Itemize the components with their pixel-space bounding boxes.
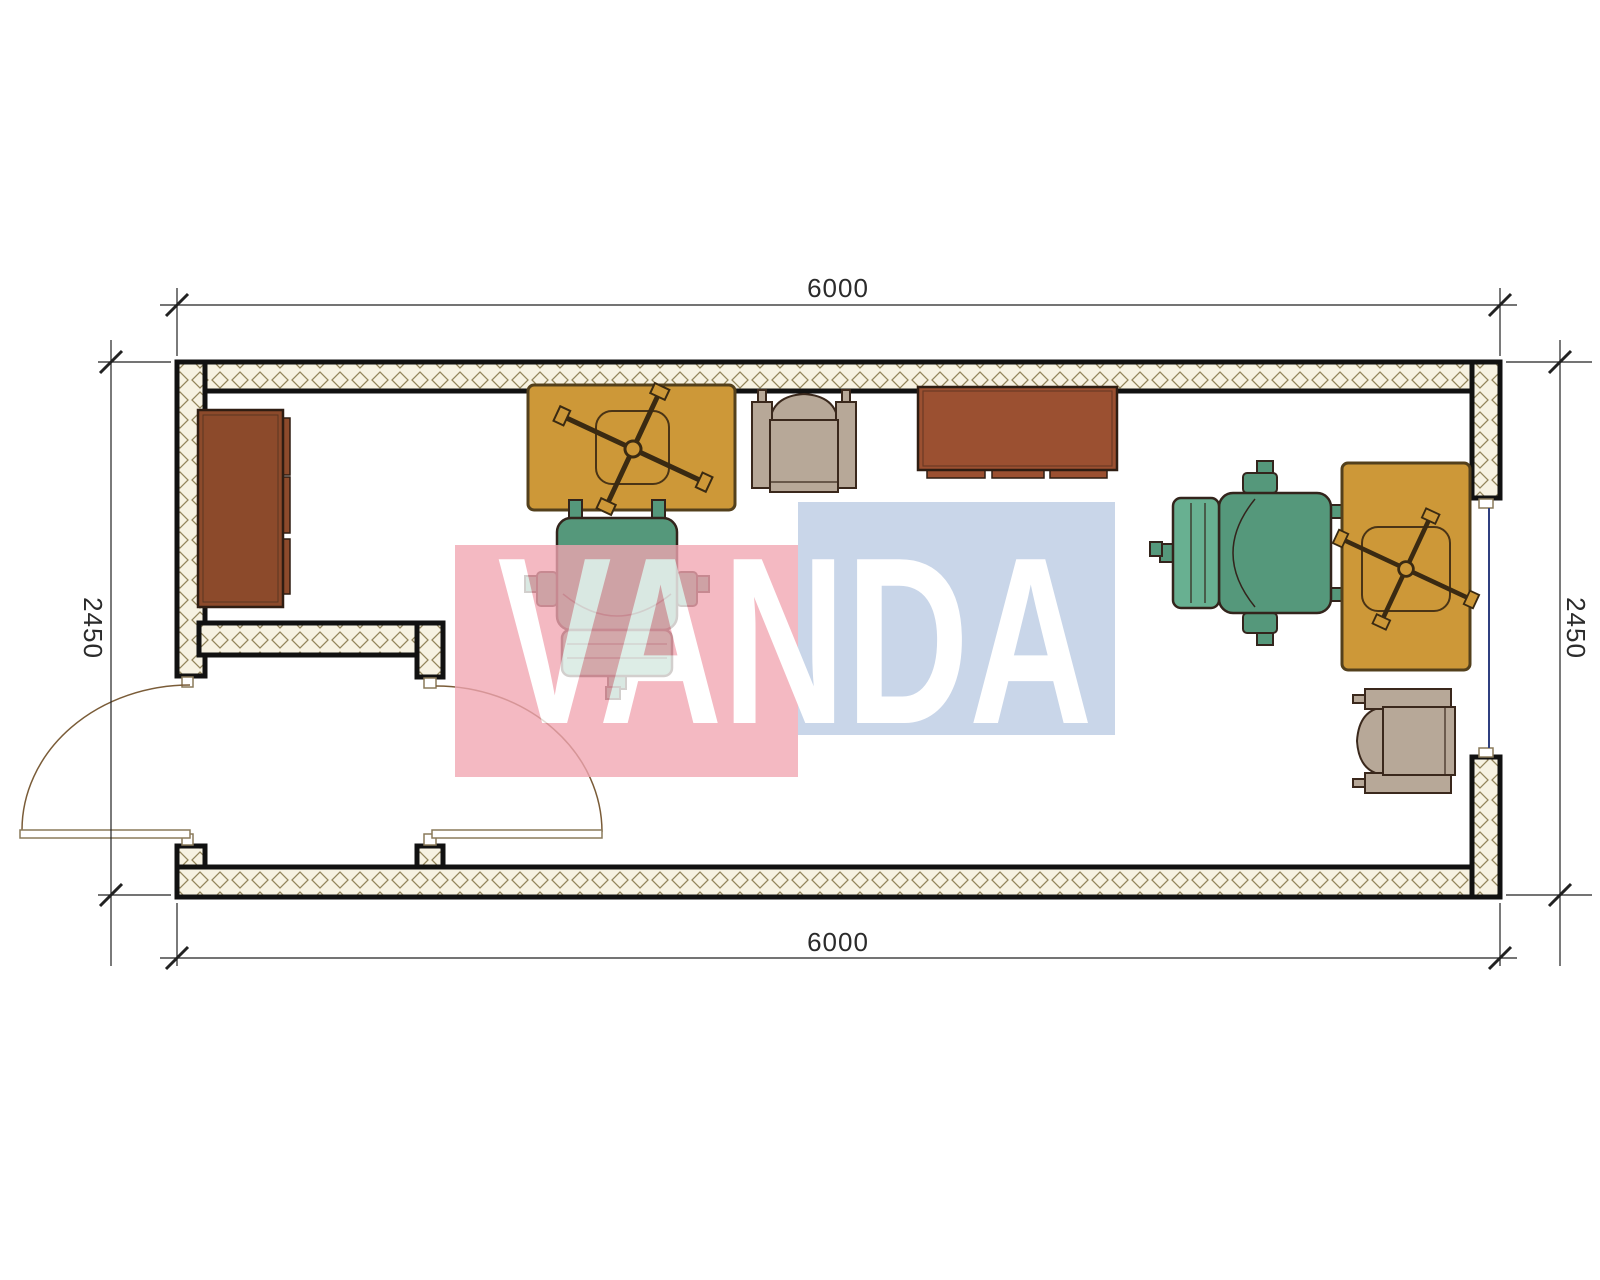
window-frame-cap xyxy=(1479,748,1493,757)
door-leaf-interior xyxy=(432,830,602,838)
wall-top xyxy=(177,362,1500,391)
dimension-label-right: 2450 xyxy=(1561,597,1591,659)
office-chair-right-icon xyxy=(1150,461,1349,645)
watermark-text: VANDA xyxy=(498,509,1093,774)
wall-right-upper xyxy=(1472,362,1500,498)
credenza-cabinet-icon xyxy=(918,387,1117,478)
door-leaf-exterior xyxy=(20,830,190,838)
dimension-label-top: 6000 xyxy=(807,273,869,303)
wall-partition xyxy=(199,623,443,655)
wall-partition-stub xyxy=(417,623,443,677)
watermark: VANDA xyxy=(455,502,1115,777)
door-swing-arc-exterior xyxy=(22,685,190,830)
armchair-top-icon xyxy=(752,390,856,492)
floor-plan-page: 6000 6000 2450 2450 VANDA xyxy=(0,0,1600,1280)
armchair-bottom-right-icon xyxy=(1353,689,1455,793)
dimension-label-bottom: 6000 xyxy=(807,927,869,957)
dimension-label-left: 2450 xyxy=(78,597,108,659)
window-frame-cap xyxy=(1479,499,1493,508)
door-frame-cap xyxy=(424,678,436,688)
wardrobe-cabinet-icon xyxy=(198,410,290,607)
floor-plan-canvas: 6000 6000 2450 2450 VANDA xyxy=(0,0,1600,1280)
wall-bottom xyxy=(177,867,1500,897)
wall-right-lower xyxy=(1472,757,1500,897)
